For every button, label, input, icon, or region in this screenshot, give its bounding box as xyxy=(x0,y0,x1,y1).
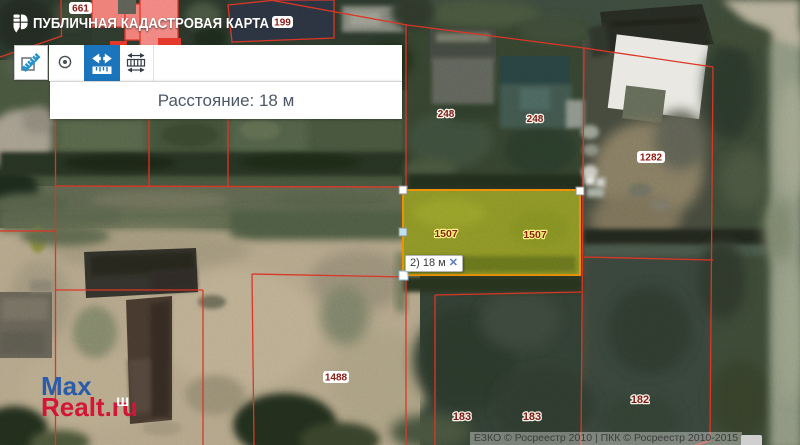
svg-text:182: 182 xyxy=(631,394,649,406)
svg-text:1507: 1507 xyxy=(523,229,547,241)
svg-text:248: 248 xyxy=(527,114,544,125)
svg-text:248: 248 xyxy=(438,109,455,120)
svg-text:199: 199 xyxy=(274,18,291,29)
svg-text:183: 183 xyxy=(453,411,471,423)
svg-text:1488: 1488 xyxy=(325,373,348,384)
svg-text:661: 661 xyxy=(72,4,89,15)
svg-text:1282: 1282 xyxy=(640,153,663,164)
svg-text:1507: 1507 xyxy=(434,228,458,240)
svg-text:183: 183 xyxy=(523,411,541,423)
